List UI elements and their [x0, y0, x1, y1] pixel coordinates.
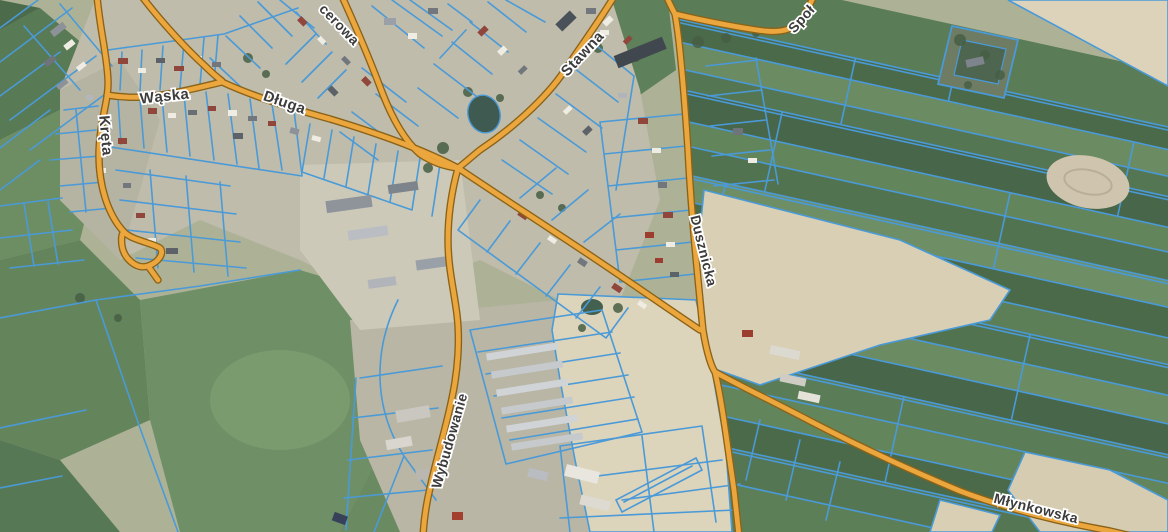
street-label-kreta: Kręta	[95, 115, 115, 157]
cadastral-map-canvas[interactable]: Kręta Wąska Długa cerowa Stawna Społ Dus…	[0, 0, 1168, 532]
map-viewport[interactable]: Kręta Wąska Długa cerowa Stawna Społ Dus…	[0, 0, 1168, 532]
